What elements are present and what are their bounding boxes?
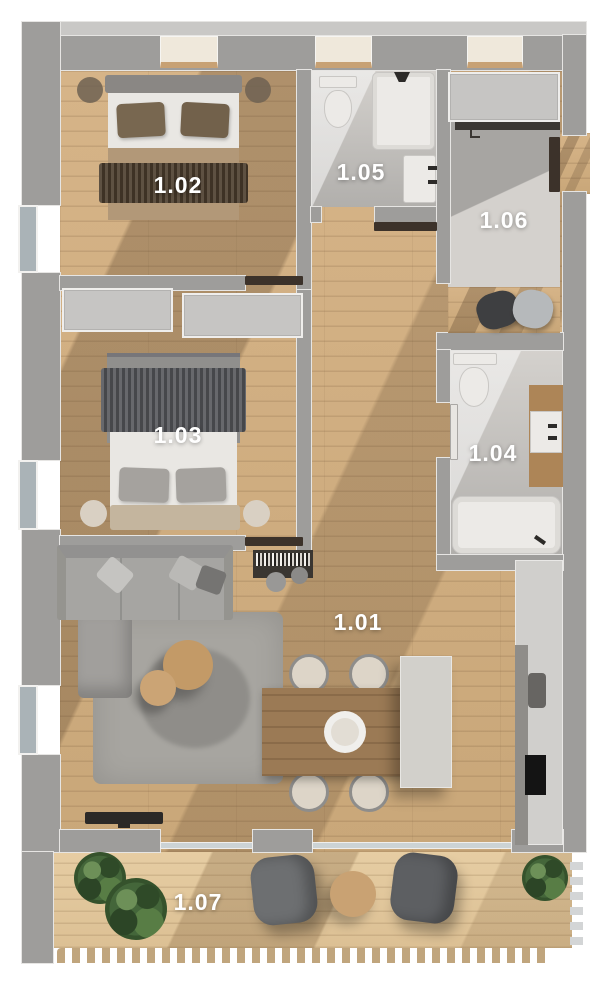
window-top-2 (315, 36, 372, 68)
sink-104-faucet-icon (548, 424, 557, 428)
room-label-1-04: 1.04 (466, 440, 520, 466)
window-left-3 (18, 685, 38, 755)
entry-106-floor (448, 122, 560, 287)
toilet-104-bowl (459, 367, 489, 407)
console-stool-1 (266, 572, 286, 592)
room-label-1-03: 1.03 (146, 420, 210, 450)
door-102-leaf (245, 276, 303, 285)
wall-bedroom102-east (297, 70, 311, 290)
sink-105-faucet-icon-2 (428, 180, 437, 184)
console-stool-2 (291, 567, 308, 584)
kitchen-counter-concrete (515, 645, 528, 845)
room-label-1-05: 1.05 (335, 158, 387, 186)
wall-left-segment-4 (22, 755, 60, 852)
door-105-leaf (374, 222, 437, 231)
nightstand-103-left (80, 500, 107, 527)
coat-rack-106 (455, 122, 560, 130)
window-top-1 (160, 36, 218, 68)
wall-bath105-south-return (311, 207, 321, 222)
wall-right-segment-2 (563, 192, 586, 852)
kitchen-cooktop (525, 755, 546, 795)
bed-102-headboard (105, 75, 242, 93)
bed-103-headboard (110, 505, 240, 530)
wall-left-segment-2 (22, 273, 60, 460)
coffee-table-small (140, 670, 176, 706)
nightstand-102-left (77, 77, 103, 103)
wall-bath104-west-a (437, 350, 450, 402)
terrace-railing-right (570, 855, 583, 945)
toilet-104-tank (453, 353, 497, 365)
lounge-chair-1 (249, 853, 320, 927)
wall-south-pier-1 (60, 830, 160, 852)
sliding-door-1 (160, 842, 253, 849)
window-left-2 (18, 460, 38, 530)
sofa-chaise (78, 620, 132, 698)
shower-105-tray (372, 72, 435, 150)
terrace-side-table (330, 871, 376, 917)
wall-entry106-south (437, 333, 563, 350)
toilet-105-tank (319, 76, 357, 88)
wardrobe-bedroom103 (182, 293, 303, 338)
wall-top-outer-band (53, 22, 586, 36)
terrace-plant-3 (522, 855, 568, 901)
dining-centerpiece-inner (331, 718, 359, 746)
window-left-1 (18, 205, 38, 273)
wall-bath105-south (375, 207, 437, 222)
room-label-1-07: 1.07 (171, 888, 225, 916)
tv-console (85, 812, 163, 824)
room-label-1-01: 1.01 (330, 608, 386, 636)
dining-chair-4 (349, 772, 389, 812)
terrace-railing-bottom (57, 948, 551, 963)
entry-landing (560, 133, 590, 194)
sliding-door-2 (312, 842, 512, 849)
room-label-1-02: 1.02 (146, 170, 210, 200)
wall-left-bottom-block (22, 852, 53, 963)
terrace-plant-2 (105, 878, 167, 940)
bed-102-pillow-right (180, 102, 230, 138)
coat-hook-icon (470, 130, 480, 138)
sink-104 (530, 411, 562, 453)
dining-chair-3 (289, 772, 329, 812)
bathtub-104 (452, 496, 561, 554)
entry-door-leaf (549, 137, 560, 192)
wall-right-segment-1 (563, 35, 586, 135)
toilet-105-bowl (324, 90, 352, 128)
door-103-leaf (245, 537, 303, 546)
nightstand-102-right (245, 77, 271, 103)
wall-bath104-west-b (437, 458, 450, 557)
kitchen-sink (528, 673, 546, 708)
bed-102-pillow-left (116, 102, 166, 138)
wardrobe-bedroom102 (62, 288, 173, 332)
bed-103-pillow-left (118, 467, 169, 503)
wall-left-segment-3 (22, 530, 60, 685)
wall-left-segment-1 (22, 22, 60, 205)
door-104-leaf (450, 404, 458, 460)
sink-105-faucet-icon (428, 166, 437, 170)
kitchen-island (400, 656, 452, 788)
bed-103-pillow-right (175, 467, 226, 503)
wardrobe-entry106 (448, 72, 560, 122)
apartment-floor-plan: 1.01 1.02 1.03 1.04 1.05 1.06 1.07 (0, 0, 606, 992)
console-books (256, 553, 310, 566)
lounge-chair-2 (388, 850, 460, 925)
sink-105 (403, 155, 436, 203)
room-label-1-06: 1.06 (477, 206, 531, 234)
nightstand-103-right (243, 500, 270, 527)
tv-console-leg (118, 824, 130, 828)
wall-south-pier-2 (253, 830, 312, 852)
window-top-3 (467, 36, 523, 68)
sink-104-faucet-icon-2 (548, 436, 557, 440)
